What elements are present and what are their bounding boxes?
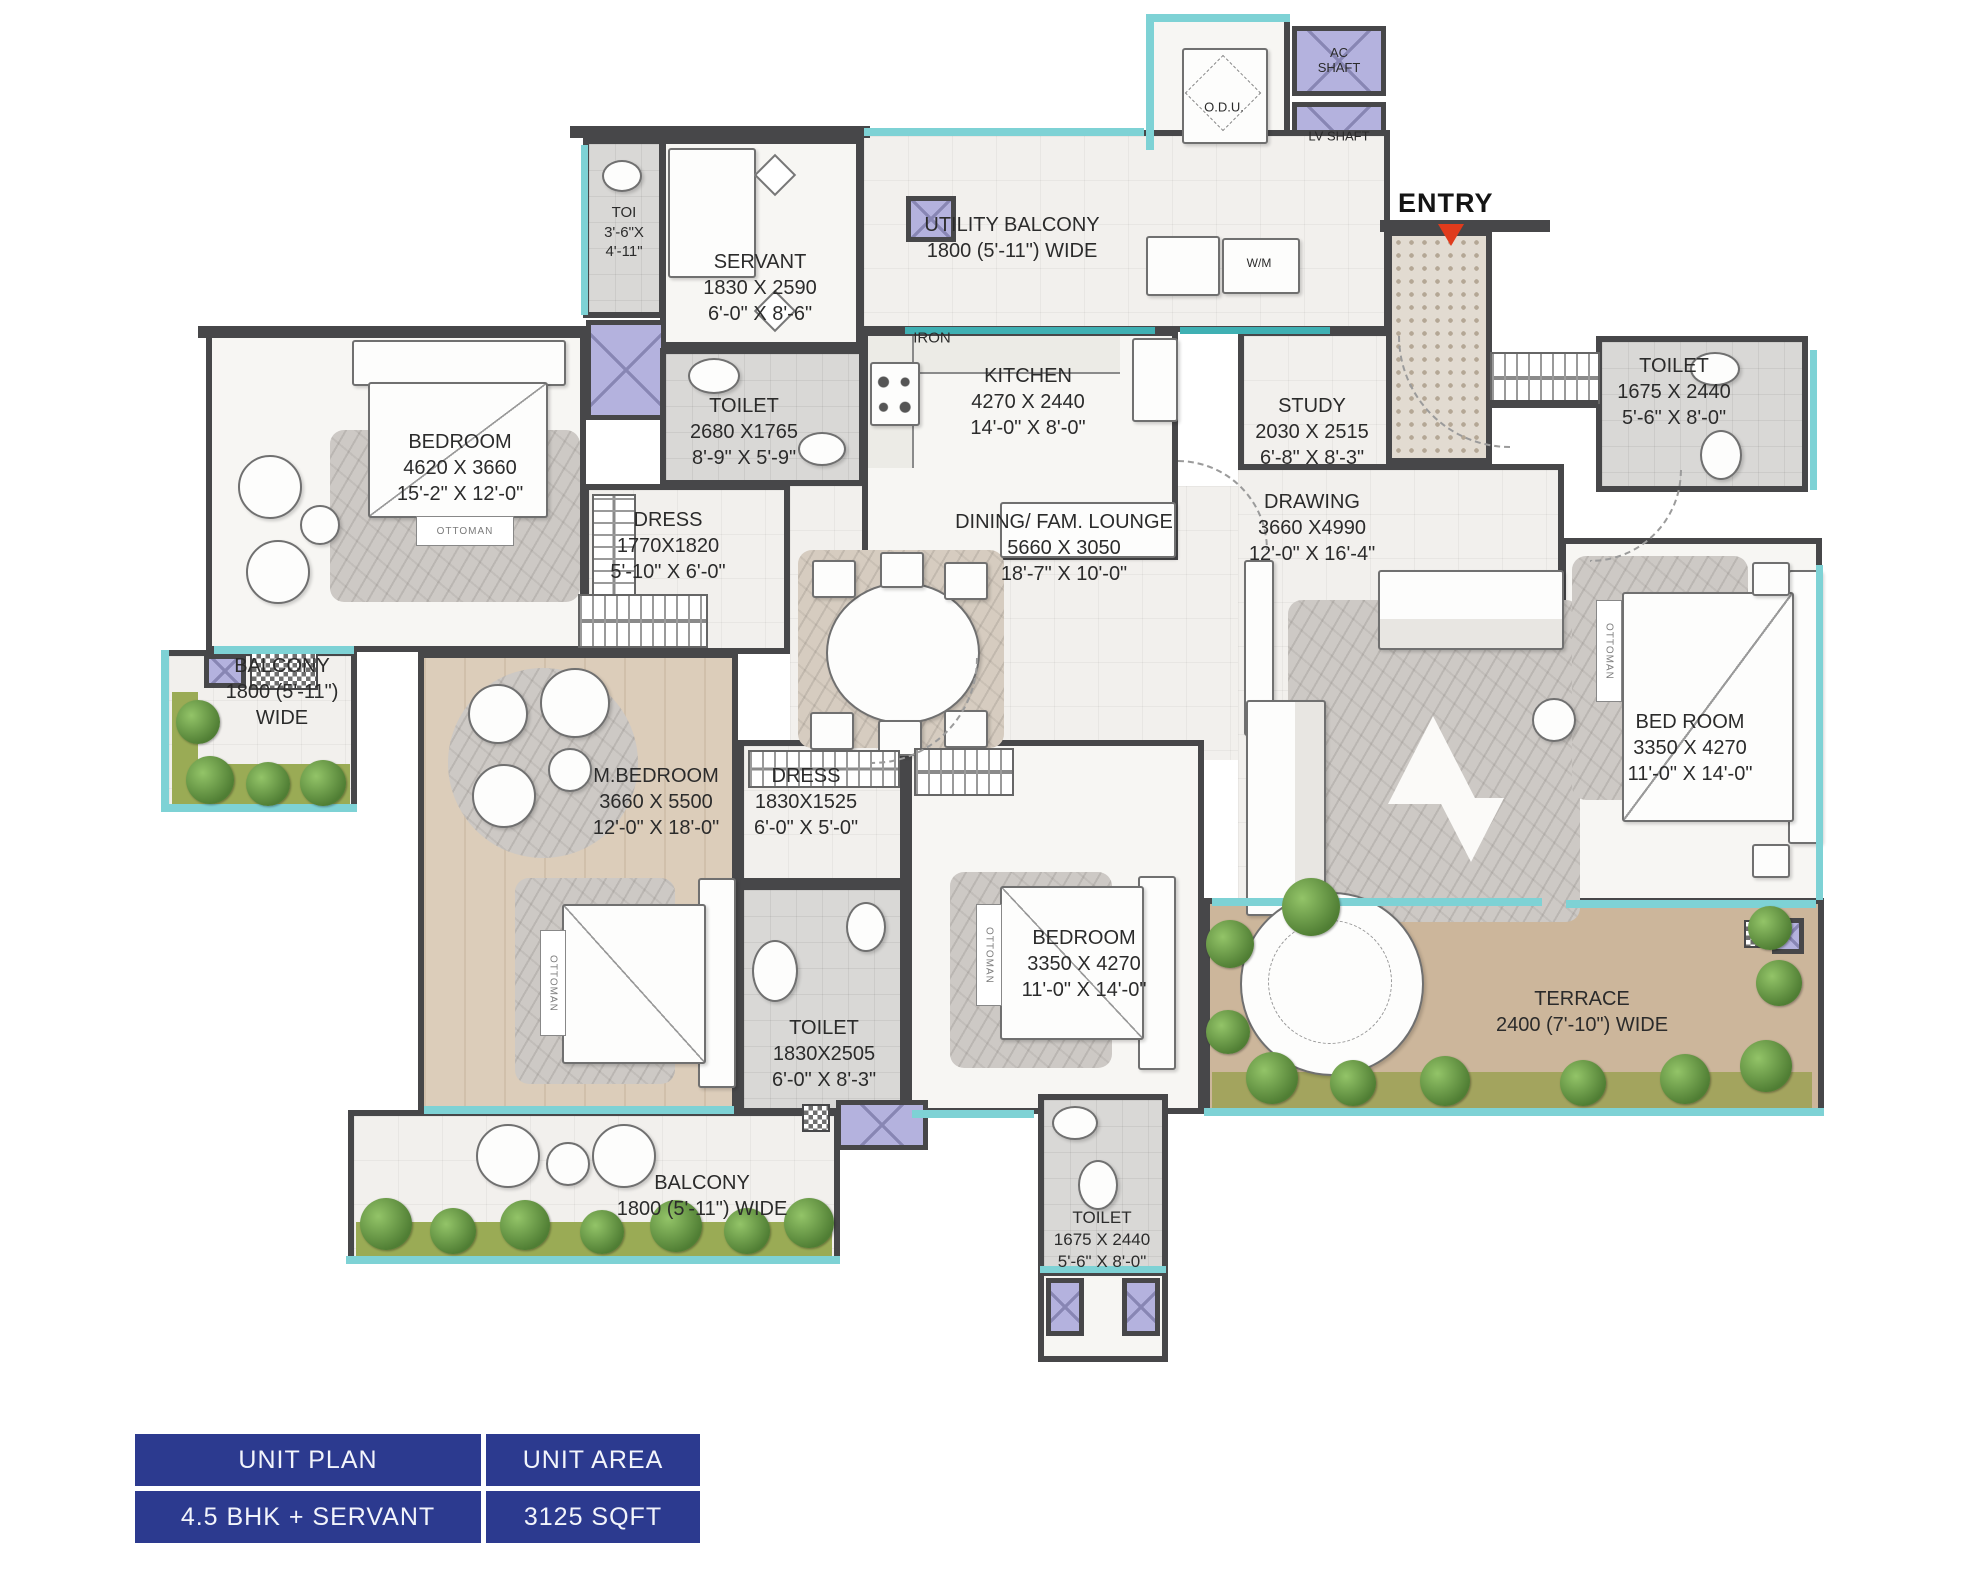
lift-shaft [586,320,666,420]
dining-label: DINING/ FAM. LOUNGE5660 X 305018'-7" X 1… [955,509,1173,587]
wc-toilet-master [846,902,886,952]
lv-shaft-label: LV SHAFT [1307,130,1371,145]
chair-mbedroom-1 [468,684,528,744]
dining-chair-2 [880,552,924,588]
shaft-bottom-right [1122,1278,1160,1336]
basin-toilet-common [688,358,740,394]
entry-label: ENTRY [1398,188,1494,219]
wc-toilet-bottom [1078,1160,1118,1210]
ottoman-bedroom-bottom: OTTOMAN [976,904,1002,1006]
kitchen-label: KITCHEN4270 X 244014'-0" X 8'-0" [970,363,1085,441]
basin-toilet-master [752,940,798,1002]
terrace-label: TERRACE2400 (7'-10") WIDE [1496,986,1668,1038]
unit-area-header: UNIT AREA [486,1434,700,1486]
odu-label: O.D.U. [1204,101,1244,116]
iron-label: IRON [913,328,951,348]
mbedroom-label: M.BEDROOM3660 X 550012'-0" X 18'-0" [593,763,719,841]
ottoman-label: OTTOMAN [1604,623,1615,680]
summary-table: UNIT PLAN UNIT AREA 4.5 BHK + SERVANT 31… [135,1434,700,1543]
bedroom-right-label: BED ROOM3350 X 427011'-0" X 14'-0" [1628,709,1753,787]
dining-chair-4 [810,712,854,750]
wm-label: W/M [1247,256,1272,272]
floor-plan: OTTOMAN OTTOMAN OTTOMAN [0,0,1968,1584]
nightstand-br-2 [1752,844,1790,878]
ottoman-label: OTTOMAN [437,526,494,537]
stove [870,362,920,426]
wall-entry-top [1380,220,1550,232]
window-toilet-entry-right [1810,350,1817,490]
window-toi-left [581,145,588,315]
window-odu-top [1146,14,1290,22]
dress-left-label: DRESS1770X18205'-10" X 6'-0" [610,507,725,585]
window-bedroom-right-outer [1816,565,1823,900]
window-utility-top [864,128,1144,136]
window-balcony-bottom-outer [346,1256,840,1264]
window-bedroom-bottom-terrace [912,1110,1034,1118]
ottoman-label: OTTOMAN [548,955,559,1012]
toilet-common-label: TOILET2680 X17658'-9" X 5'-9" [690,393,798,471]
table-balcony [546,1142,590,1186]
window-terrace-outer [1204,1108,1824,1116]
dress-master-label: DRESS1830X15256'-0" X 5'-0" [754,763,858,841]
ac-shaft-label: AC SHAFT [1307,46,1371,76]
balcony-left-label: BALCONY1800 (5'-11")WIDE [226,653,339,731]
window-study-top [1180,327,1330,334]
toilet-bottom-label: TOILET1675 X 24405'-6" X 8'-0" [1054,1207,1150,1273]
wall-wardrobe-corridor [1488,400,1598,408]
refrigerator [1132,338,1178,422]
wc-toilet-common [798,432,846,466]
bed-mbedroom [562,904,706,1064]
dining-chair-1 [812,560,856,598]
wall-top-servant [570,126,870,138]
headboard-bedroom-left [352,340,566,386]
toi-label: TOI3'-6"X4'-11" [604,203,644,262]
window-mbedroom-balcony [424,1106,734,1114]
chair-mbedroom-3 [472,764,536,828]
window-balcony-left-outer [161,650,169,810]
wardrobe-bedroom-bottom [914,748,1014,796]
balcony-bottom-hatch [802,1104,830,1132]
ottoman-bedroom-left: OTTOMAN [416,516,514,546]
sofa-drawing-top [1378,570,1564,650]
terrace-lawn [1212,1072,1812,1110]
wc-toi [602,160,642,192]
servant-label: SERVANT1830 X 25906'-0" X 8'-6" [703,249,816,327]
wall-bedroom-left-top [198,326,590,338]
window-odu-left [1146,14,1154,150]
wardrobe-mbedroom [578,594,708,648]
unit-area-value: 3125 SQFT [486,1491,700,1543]
study-label: STUDY2030 X 25156'-8" X 8'-3" [1255,393,1368,471]
ottoman-mbedroom: OTTOMAN [540,930,566,1036]
terrace-daybed-inner [1268,920,1392,1044]
chair-bedroom-left-2 [246,540,310,604]
wc-toilet-entry [1700,430,1742,480]
stool-drawing [1532,698,1576,742]
entry-arrow-icon [1438,224,1464,246]
nightstand-br-1 [1752,562,1790,596]
window-drawing-terrace [1212,898,1542,906]
shower-master [836,1100,928,1150]
shaft-bottom-left [1046,1278,1084,1336]
dishwasher [1146,236,1220,296]
ottoman-bedroom-right: OTTOMAN [1596,600,1622,702]
chair-bedroom-left-1 [238,455,302,519]
table-mbedroom [548,748,592,792]
basin-toilet-bottom [1052,1106,1098,1140]
ottoman-label: OTTOMAN [984,927,995,984]
utility-balcony-label: UTILITY BALCONY1800 (5'-11") WIDE [924,212,1099,264]
table-bedroom-left [300,505,340,545]
chair-mbedroom-2 [540,668,610,738]
chair-balcony-1 [476,1124,540,1188]
bedroom-bottom-label: BEDROOM3350 X 427011'-0" X 14'-0" [1022,925,1147,1003]
unit-plan-value: 4.5 BHK + SERVANT [135,1491,481,1543]
toilet-master-label: TOILET1830X25056'-0" X 8'-3" [772,1015,876,1093]
bedroom-left-label: BEDROOM4620 X 366015'-2" X 12'-0" [397,429,523,507]
unit-plan-header: UNIT PLAN [135,1434,481,1486]
balcony-bottom-label: BALCONY1800 (5'-11") WIDE [617,1170,788,1222]
drawing-label: DRAWING3660 X499012'-0" X 16'-4" [1249,489,1375,567]
toilet-entry-label: TOILET1675 X 24405'-6" X 8'-0" [1617,353,1730,431]
bed-bedroom-right [1622,592,1794,822]
